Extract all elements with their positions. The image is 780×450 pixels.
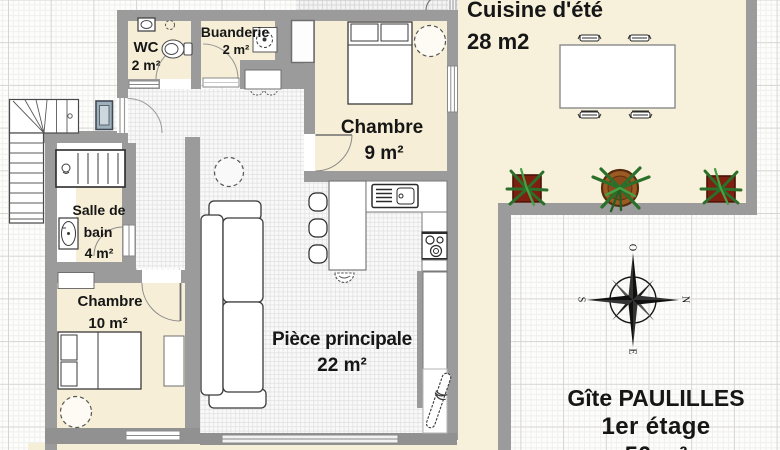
svg-text:10 m²: 10 m² <box>88 315 127 332</box>
svg-text:Cuisine d'été: Cuisine d'été <box>467 0 603 22</box>
svg-text:1er étage: 1er étage <box>602 413 711 440</box>
svg-text:WC: WC <box>134 39 159 56</box>
svg-text:S: S <box>576 297 587 303</box>
svg-text:9 m²: 9 m² <box>364 143 403 164</box>
svg-text:50 m²: 50 m² <box>625 442 688 450</box>
svg-text:28 m2: 28 m2 <box>467 29 529 54</box>
svg-text:Pièce principale: Pièce principale <box>272 329 412 350</box>
svg-text:2 m²: 2 m² <box>223 42 250 57</box>
svg-text:Chambre: Chambre <box>341 117 423 138</box>
svg-text:22 m²: 22 m² <box>317 355 367 376</box>
svg-text:Buanderie: Buanderie <box>201 24 270 40</box>
svg-text:Gîte PAULILLES: Gîte PAULILLES <box>567 385 744 411</box>
svg-text:4 m²: 4 m² <box>85 245 114 261</box>
svg-text:Salle de: Salle de <box>73 202 126 218</box>
svg-text:N: N <box>680 296 691 303</box>
svg-text:Chambre: Chambre <box>77 293 142 310</box>
svg-text:E: E <box>627 348 638 354</box>
svg-text:O: O <box>627 244 638 251</box>
svg-text:bain: bain <box>84 224 113 240</box>
svg-text:2 m²: 2 m² <box>132 57 161 73</box>
